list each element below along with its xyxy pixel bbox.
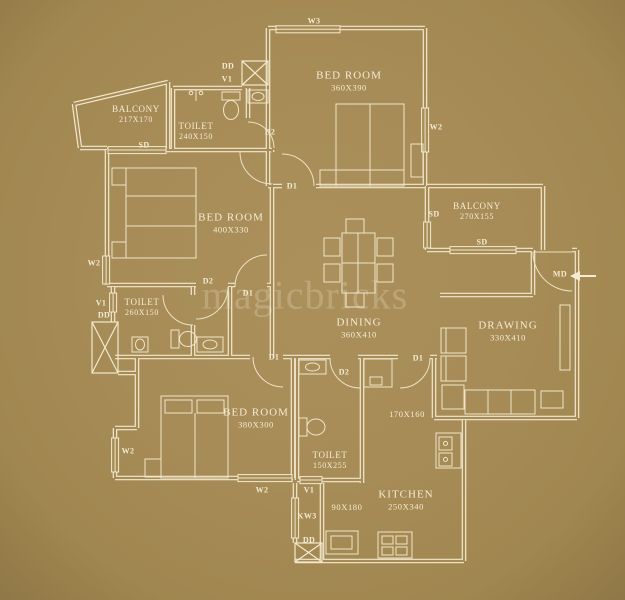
room-label-bedroom-left: BED ROOM 400X330 (198, 212, 264, 235)
room-dims: 260X150 (125, 308, 160, 317)
marker-window-w2-bedroom-left: W2 (88, 259, 101, 268)
room-name: BALCONY (453, 201, 501, 212)
room-dims: 250X340 (378, 501, 433, 511)
bed-symbol-top (320, 104, 423, 186)
marker-window-kw3-kitchen: KW3 (297, 512, 316, 521)
room-label-bedroom-top: BED ROOM 360X390 (316, 70, 382, 93)
marker-slider-sd-balcony-right-b: SD (476, 238, 487, 247)
entrance-arrow-icon (570, 271, 596, 281)
marker-main-door-md: MD (553, 270, 567, 279)
door-arcs (163, 122, 572, 388)
marker-window-w2-bedroom-bottom: W2 (256, 486, 269, 495)
room-name: BED ROOM (316, 70, 382, 83)
marker-door-d1-bedroom-bottom: D1 (269, 353, 280, 362)
door-arc (196, 287, 228, 319)
room-label-toilet-left: TOILET 260X150 (125, 297, 160, 317)
room-label-toilet-bottom: TOILET 150X255 (313, 450, 348, 470)
marker-slider-sd-balcony-right-a: SD (428, 210, 439, 219)
marker-slider-sd-balcony-left: SD (138, 141, 149, 150)
bed-symbol-bottom (145, 396, 228, 478)
room-dims: 400X330 (198, 224, 264, 234)
room-dims: 360X410 (336, 329, 381, 339)
room-label-kitchen: KITCHEN 250X340 (378, 489, 433, 512)
toilet-symbol-top (189, 90, 268, 120)
stove-symbol (436, 433, 461, 468)
room-label-balcony-top: BALCONY 217X170 (112, 104, 160, 124)
room-name: BED ROOM (223, 407, 289, 420)
marker-window-w3: W3 (308, 17, 321, 26)
marker-door-d1-bedroom-top: D1 (287, 182, 298, 191)
door-arc (253, 357, 283, 387)
marker-window-w2-bedroom-top: W2 (430, 123, 443, 132)
duct-shaft-top (242, 61, 268, 85)
room-label-dining: DINING 360X410 (336, 317, 381, 340)
marker-duct-dd-top: DD (222, 62, 234, 71)
marker-duct-dd-kitchen: DD (303, 536, 315, 545)
cabinet-symbol (364, 359, 392, 387)
room-label-bedroom-bottom: BED ROOM 380X300 (223, 407, 289, 430)
room-dims: 380X300 (223, 419, 289, 429)
room-name: TOILET (179, 121, 214, 132)
bed-symbol-left (112, 168, 196, 258)
marker-window-w2-bedroom-bottom-left: W2 (122, 447, 135, 456)
door-arc (400, 358, 430, 388)
marker-duct-dd-left: DD (98, 311, 110, 320)
window-symbols (103, 26, 516, 538)
room-dims: 330X410 (478, 332, 537, 342)
door-arc (163, 295, 193, 325)
room-dims: 150X255 (313, 461, 348, 470)
room-dims: 360X390 (316, 82, 382, 92)
passage-dims: 90X180 (332, 502, 363, 512)
room-label-toilet-top: TOILET 240X150 (179, 121, 214, 141)
marker-door-d2-bedroom-left: D2 (203, 277, 214, 286)
dining-table-symbol (324, 219, 393, 307)
marker-vent-v1-toilet-left: V1 (96, 299, 107, 308)
room-name: TOILET (313, 450, 348, 461)
passage-dims: 170X160 (389, 409, 425, 419)
duct-shaft-left (92, 322, 118, 373)
marker-vent-v1-toilet-bottom: V1 (304, 486, 315, 495)
room-dims: 217X170 (112, 115, 160, 124)
floor-plan: magicbricks BALCONY 217X170 TOILET 240X1… (0, 0, 625, 600)
marker-vent-v1-top: V1 (222, 75, 233, 84)
kitchen-sink-symbol (326, 531, 412, 558)
room-dims: 270X155 (453, 212, 501, 221)
marker-door-d2-top: D2 (265, 128, 276, 137)
door-arc (235, 255, 267, 287)
room-label-drawing: DRAWING 330X410 (478, 320, 537, 343)
room-name: DRAWING (478, 320, 537, 333)
toilet-symbol-left (132, 330, 223, 352)
toilet-symbol-bottom (299, 360, 326, 436)
room-name: TOILET (125, 297, 160, 308)
room-name: BALCONY (112, 104, 160, 115)
room-name: BED ROOM (198, 212, 264, 225)
room-dims: 240X150 (179, 132, 214, 141)
marker-door-d1-drawing: D1 (413, 354, 424, 363)
room-label-balcony-right: BALCONY 270X155 (453, 201, 501, 221)
room-name: KITCHEN (378, 489, 433, 502)
marker-door-d2-toilet-bottom: D2 (339, 368, 350, 377)
floor-plan-drawing (0, 0, 625, 600)
room-name: DINING (336, 317, 381, 330)
marker-door-d1-corridor: D1 (243, 289, 254, 298)
